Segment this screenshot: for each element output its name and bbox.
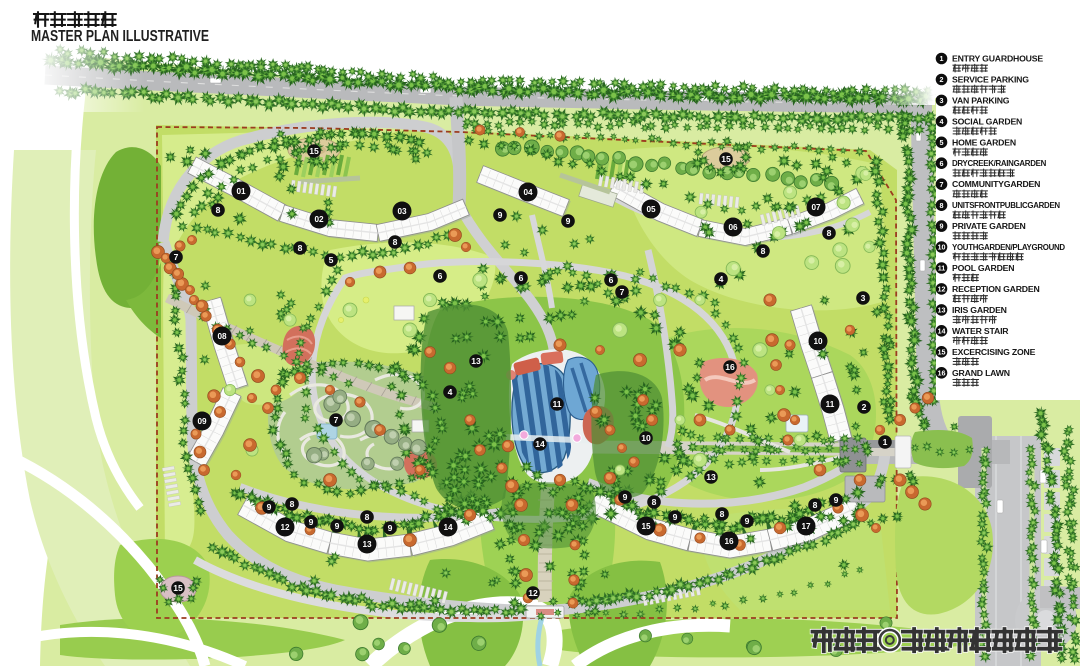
svg-text:8: 8 — [827, 228, 832, 238]
svg-text:9: 9 — [623, 492, 628, 502]
svg-text:POOL GARDEN: POOL GARDEN — [952, 263, 1014, 273]
svg-text:7: 7 — [940, 180, 944, 189]
svg-text:PRIVATE GARDEN: PRIVATE GARDEN — [952, 221, 1026, 231]
svg-text:9: 9 — [388, 523, 393, 533]
svg-text:14: 14 — [535, 439, 545, 449]
svg-text:01: 01 — [236, 187, 246, 196]
svg-text:9: 9 — [940, 222, 944, 231]
svg-text:13: 13 — [471, 356, 481, 366]
svg-text:11: 11 — [552, 399, 561, 409]
svg-text:9: 9 — [335, 521, 340, 531]
svg-text:17: 17 — [801, 522, 811, 531]
svg-text:09: 09 — [197, 417, 207, 426]
svg-text:EXCERCISING ZONE: EXCERCISING ZONE — [952, 347, 1036, 357]
svg-text:SERVICE PARKING: SERVICE PARKING — [952, 75, 1029, 85]
svg-text:13: 13 — [706, 472, 716, 482]
svg-text:8: 8 — [216, 205, 221, 215]
svg-text:8: 8 — [940, 201, 944, 210]
svg-text:8: 8 — [720, 509, 725, 519]
svg-text:03: 03 — [397, 207, 407, 216]
svg-text:8: 8 — [365, 512, 370, 522]
svg-text:11: 11 — [826, 400, 835, 409]
svg-text:ENTRY GUARDHOUSE: ENTRY GUARDHOUSE — [952, 54, 1043, 64]
svg-text:08: 08 — [217, 332, 227, 341]
svg-text:02: 02 — [314, 215, 324, 224]
svg-text:7: 7 — [620, 287, 625, 297]
svg-text:4: 4 — [719, 274, 724, 284]
svg-text:16: 16 — [725, 362, 735, 372]
svg-text:4: 4 — [940, 117, 944, 126]
svg-text:2: 2 — [862, 402, 867, 412]
svg-text:14: 14 — [938, 326, 946, 335]
svg-text:6: 6 — [438, 271, 443, 281]
svg-text:9: 9 — [566, 216, 571, 226]
svg-text:10: 10 — [813, 337, 823, 346]
svg-text:06: 06 — [728, 223, 738, 232]
svg-text:13: 13 — [938, 306, 946, 315]
svg-text:07: 07 — [811, 203, 821, 212]
svg-text:SOCIAL GARDEN: SOCIAL GARDEN — [952, 116, 1022, 126]
svg-text:5: 5 — [329, 255, 334, 265]
svg-text:14: 14 — [443, 523, 453, 532]
svg-text:8: 8 — [813, 500, 818, 510]
svg-text:8: 8 — [652, 497, 657, 507]
svg-text:15: 15 — [938, 347, 946, 356]
svg-text:8: 8 — [393, 237, 398, 247]
svg-text:04: 04 — [523, 188, 533, 197]
svg-text:YOUTHGARDEN/PLAYGROUND: YOUTHGARDEN/PLAYGROUND — [952, 243, 1065, 252]
svg-text:3: 3 — [940, 96, 944, 105]
svg-text:HOME GARDEN: HOME GARDEN — [952, 137, 1016, 147]
svg-text:6: 6 — [519, 273, 524, 283]
svg-text:15: 15 — [721, 154, 731, 164]
svg-text:9: 9 — [498, 210, 503, 220]
svg-text:1: 1 — [940, 54, 944, 63]
svg-text:GRAND LAWN: GRAND LAWN — [952, 368, 1010, 378]
svg-text:9: 9 — [267, 502, 272, 512]
svg-text:05: 05 — [646, 205, 656, 214]
svg-text:UNITSFRONTPUBLICGARDEN: UNITSFRONTPUBLICGARDEN — [952, 201, 1060, 210]
svg-text:9: 9 — [745, 516, 750, 526]
svg-text:9: 9 — [673, 512, 678, 522]
svg-text:WATER STAIR: WATER STAIR — [952, 326, 1009, 336]
svg-text:DRYCREEK/RAINGARDEN: DRYCREEK/RAINGARDEN — [952, 159, 1047, 168]
svg-text:16: 16 — [938, 368, 946, 377]
svg-text:VAN PARKING: VAN PARKING — [952, 95, 1010, 105]
svg-text:4: 4 — [448, 387, 453, 397]
svg-text:10: 10 — [641, 433, 651, 443]
svg-text:8: 8 — [290, 499, 295, 509]
svg-text:MASTER PLAN ILLUSTRATIVE: MASTER PLAN ILLUSTRATIVE — [31, 28, 209, 45]
svg-text:9: 9 — [309, 517, 314, 527]
svg-text:15: 15 — [309, 146, 319, 156]
svg-text:1: 1 — [883, 437, 888, 447]
svg-text:RECEPTION GARDEN: RECEPTION GARDEN — [952, 284, 1040, 294]
svg-text:5: 5 — [940, 138, 944, 147]
svg-text:13: 13 — [362, 540, 372, 549]
svg-text:10: 10 — [938, 243, 946, 252]
svg-text:COMMUNITYGARDEN: COMMUNITYGARDEN — [952, 179, 1040, 189]
svg-text:12: 12 — [938, 285, 946, 294]
svg-text:8: 8 — [298, 243, 303, 253]
svg-text:3: 3 — [861, 293, 866, 303]
svg-text:2: 2 — [940, 75, 944, 84]
svg-text:6: 6 — [940, 159, 944, 168]
svg-text:7: 7 — [334, 415, 339, 425]
svg-text:12: 12 — [280, 523, 290, 532]
svg-text:16: 16 — [724, 537, 734, 546]
svg-text:9: 9 — [834, 495, 839, 505]
svg-text:11: 11 — [938, 264, 946, 273]
svg-text:IRIS GARDEN: IRIS GARDEN — [952, 305, 1007, 315]
svg-text:8: 8 — [761, 246, 766, 256]
svg-text:6: 6 — [609, 275, 614, 285]
svg-text:12: 12 — [528, 588, 538, 598]
svg-text:7: 7 — [174, 252, 179, 262]
svg-text:15: 15 — [641, 522, 651, 531]
svg-text:15: 15 — [173, 583, 183, 593]
